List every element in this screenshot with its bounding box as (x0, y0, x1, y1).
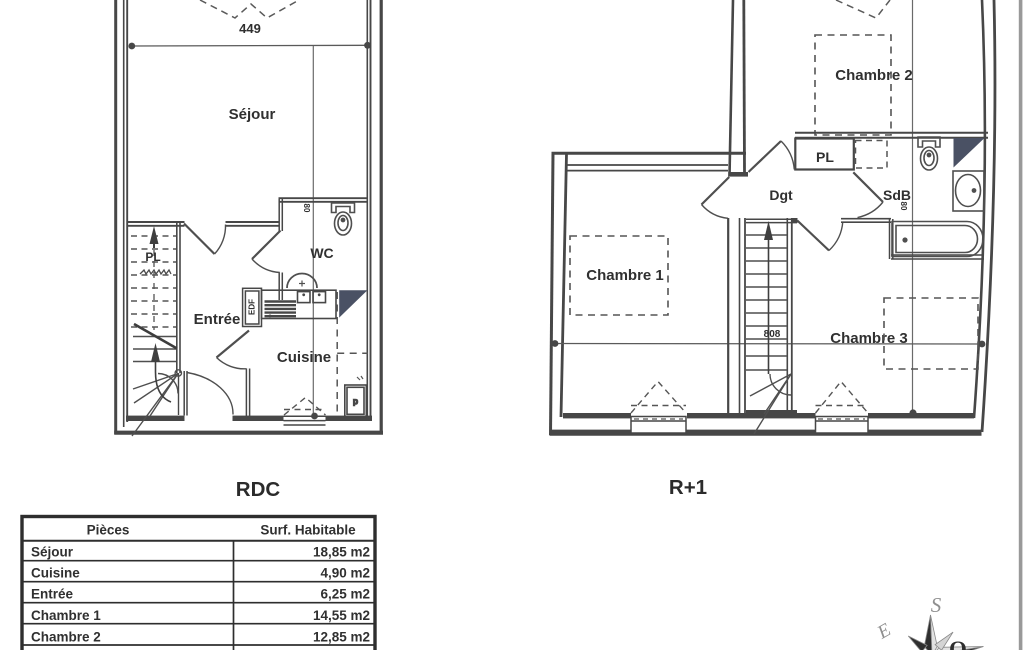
svg-text:Chambre 2: Chambre 2 (31, 630, 101, 645)
svg-text:808: 808 (764, 329, 781, 340)
svg-text:Chambre 2: Chambre 2 (835, 67, 913, 84)
svg-text:Chambre 1: Chambre 1 (586, 267, 664, 284)
svg-text:R+1: R+1 (669, 476, 707, 499)
svg-text:EDF: EDF (248, 299, 257, 315)
svg-text:O: O (949, 637, 967, 650)
svg-text:Chambre 3: Chambre 3 (830, 330, 908, 347)
svg-text:Surf. Habitable: Surf. Habitable (260, 523, 356, 538)
svg-text:S: S (931, 593, 942, 617)
svg-text:Chambre 1: Chambre 1 (31, 608, 101, 623)
svg-text:RDC: RDC (236, 478, 281, 501)
svg-text:p: p (353, 396, 358, 406)
svg-text:80: 80 (899, 202, 908, 211)
svg-text:Cuisine: Cuisine (31, 566, 80, 581)
svg-text:PL: PL (145, 250, 160, 264)
svg-text:Cuisine: Cuisine (277, 349, 331, 366)
svg-text:80: 80 (302, 204, 311, 213)
svg-text:14,55 m2: 14,55 m2 (313, 608, 370, 623)
svg-text:Séjour: Séjour (229, 106, 276, 123)
svg-text:12,85 m2: 12,85 m2 (313, 630, 370, 645)
svg-text:4,90 m2: 4,90 m2 (320, 566, 370, 581)
svg-text:449: 449 (239, 21, 261, 36)
svg-text:PL: PL (816, 149, 834, 165)
svg-text:Pièces: Pièces (87, 523, 130, 538)
svg-text:6,25 m2: 6,25 m2 (320, 587, 370, 602)
svg-text:Entrée: Entrée (31, 587, 74, 602)
svg-text:Dgt: Dgt (769, 187, 793, 203)
svg-text:WC: WC (310, 245, 333, 261)
svg-text:Séjour: Séjour (31, 545, 74, 560)
svg-text:18,85 m2: 18,85 m2 (313, 545, 370, 560)
svg-text:Entrée: Entrée (194, 311, 241, 328)
